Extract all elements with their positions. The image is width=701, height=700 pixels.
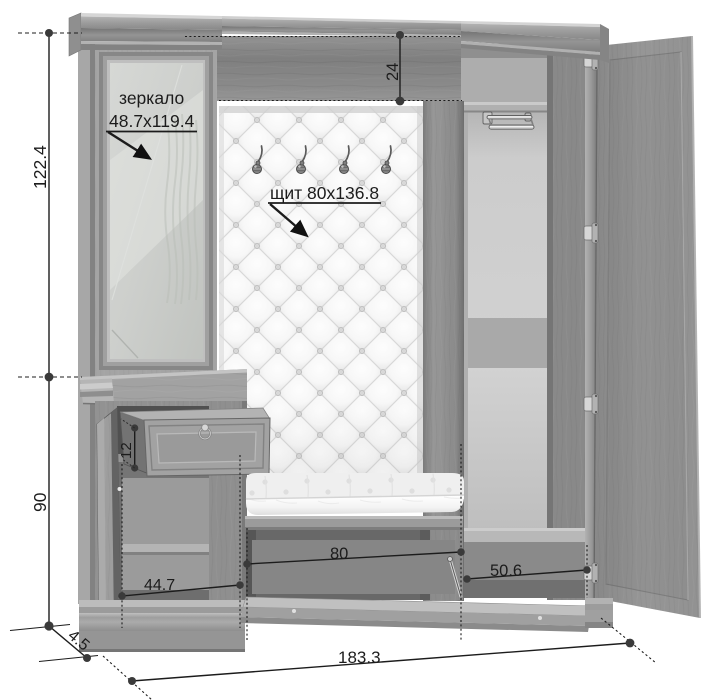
- svg-text:24: 24: [384, 63, 402, 81]
- svg-text:зеркало: зеркало: [119, 88, 184, 108]
- svg-text:48.7x119.4: 48.7x119.4: [109, 111, 195, 131]
- svg-text:80: 80: [330, 545, 348, 563]
- svg-text:50.6: 50.6: [490, 562, 522, 580]
- svg-text:183.3: 183.3: [338, 648, 381, 667]
- svg-text:122.4: 122.4: [30, 145, 50, 189]
- svg-text:12: 12: [118, 442, 135, 459]
- svg-text:90: 90: [30, 492, 50, 512]
- svg-text:щит 80x136.8: щит 80x136.8: [270, 183, 379, 203]
- svg-text:44.7: 44.7: [144, 577, 175, 594]
